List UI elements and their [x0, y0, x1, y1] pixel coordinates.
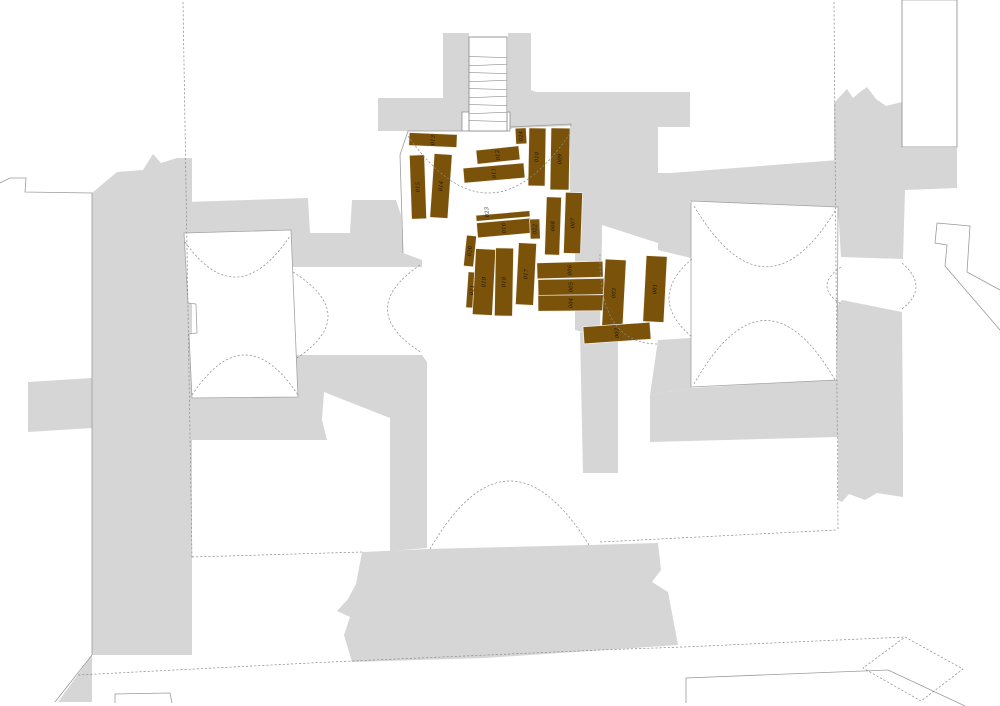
room-east-room	[691, 201, 838, 387]
room-west-room	[184, 230, 298, 398]
outline-bottom-small-structure	[115, 693, 172, 703]
mass-east-trunk-lower	[838, 300, 903, 502]
mass-band-above-right-room	[658, 160, 838, 207]
dashed-southeast-room-bottom	[600, 530, 837, 542]
outline-northwest-building-edge	[0, 178, 92, 702]
mass-right-room-west-jamb-upper	[658, 203, 691, 258]
grave-label-016: 016	[501, 222, 508, 233]
arc-nave-south-vault	[430, 481, 589, 549]
grave-label-018: 018	[501, 276, 507, 287]
outline-east-key-shape-outer	[937, 223, 1000, 290]
room-northeast-slot	[902, 0, 957, 147]
grave-label-021: 021	[469, 285, 476, 296]
mass-nave-east-strip-south	[580, 332, 618, 473]
grave-label-002: 002	[614, 328, 621, 339]
grave-label-022: 022	[532, 224, 538, 235]
dashed-southwest-room-bottom	[192, 552, 362, 557]
site-plan-drawing: 0130150140120110240100090230160220080070…	[0, 0, 1000, 706]
grave-label-020: 020	[467, 245, 474, 257]
mass-stair-block-west	[378, 33, 469, 131]
grave-label-009: 009	[557, 153, 563, 164]
grave-label-003: 003	[611, 287, 618, 298]
grave-label-024: 024	[518, 131, 525, 142]
grave-label-013: 013	[430, 134, 436, 145]
grave-label-005: 005	[568, 282, 574, 293]
mass-west-tab	[28, 378, 92, 432]
outline-east-key-shape-inner	[935, 223, 1000, 330]
arc-east-passage-right	[902, 263, 916, 309]
arc-east-room-west-door	[669, 259, 692, 337]
grave-label-023: 023	[484, 206, 491, 217]
grave-label-004: 004	[568, 298, 574, 309]
grave-label-010: 010	[534, 151, 540, 162]
dashed-bottom-diamond	[863, 637, 963, 701]
outline-graves-room-west-wall	[400, 131, 462, 253]
arc-west-room-east-door	[293, 272, 328, 358]
staircase	[469, 37, 507, 131]
grave-label-015: 015	[415, 182, 421, 193]
grave-label-011: 011	[491, 167, 498, 178]
mass-west-slab	[92, 154, 192, 655]
grave-label-017: 017	[523, 268, 530, 279]
outline-bottom-retaining-line	[686, 670, 965, 706]
grave-label-007: 007	[570, 217, 576, 228]
arc-west-corridor-door	[387, 265, 422, 353]
grave-label-019: 019	[481, 276, 488, 287]
grave-label-001: 001	[652, 284, 659, 295]
grave-label-012: 012	[495, 149, 502, 160]
floor-plan-canvas: 0130150140120110240100090230160220080070…	[0, 0, 1000, 706]
grave-label-014: 014	[438, 181, 445, 192]
grave-label-008: 008	[550, 220, 556, 231]
mass-right-room-west-jamb-lower	[650, 338, 691, 395]
mass-bottom-center-blob	[337, 543, 678, 662]
grave-label-006: 006	[567, 264, 573, 275]
